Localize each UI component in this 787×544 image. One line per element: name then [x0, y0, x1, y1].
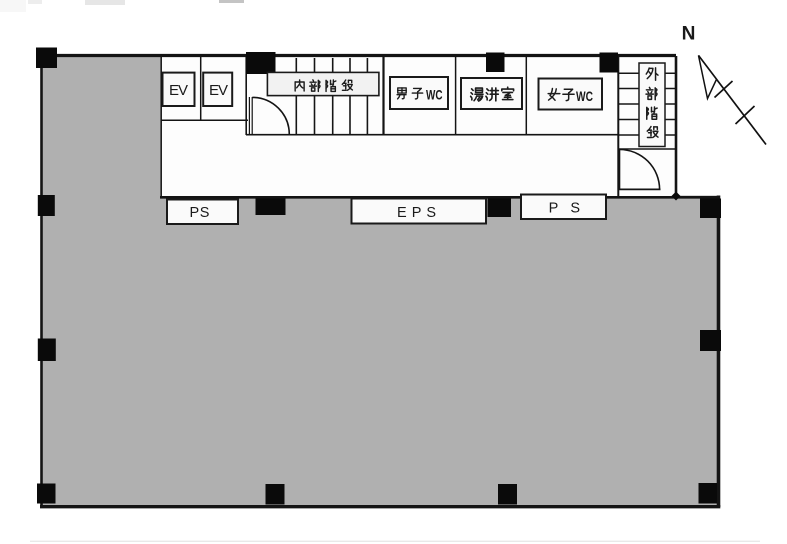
svg-text:S: S	[570, 200, 580, 216]
svg-text:EV: EV	[209, 82, 228, 99]
svg-text:S: S	[426, 205, 436, 221]
svg-text:P: P	[412, 205, 422, 221]
svg-text:E: E	[397, 205, 407, 221]
svg-text:WC: WC	[426, 88, 443, 103]
svg-text:P: P	[190, 205, 200, 221]
svg-text:WC: WC	[576, 89, 593, 104]
svg-text:S: S	[200, 205, 210, 221]
svg-text:P: P	[549, 200, 559, 216]
svg-text:EV: EV	[169, 82, 188, 99]
svg-text:N: N	[682, 23, 696, 44]
